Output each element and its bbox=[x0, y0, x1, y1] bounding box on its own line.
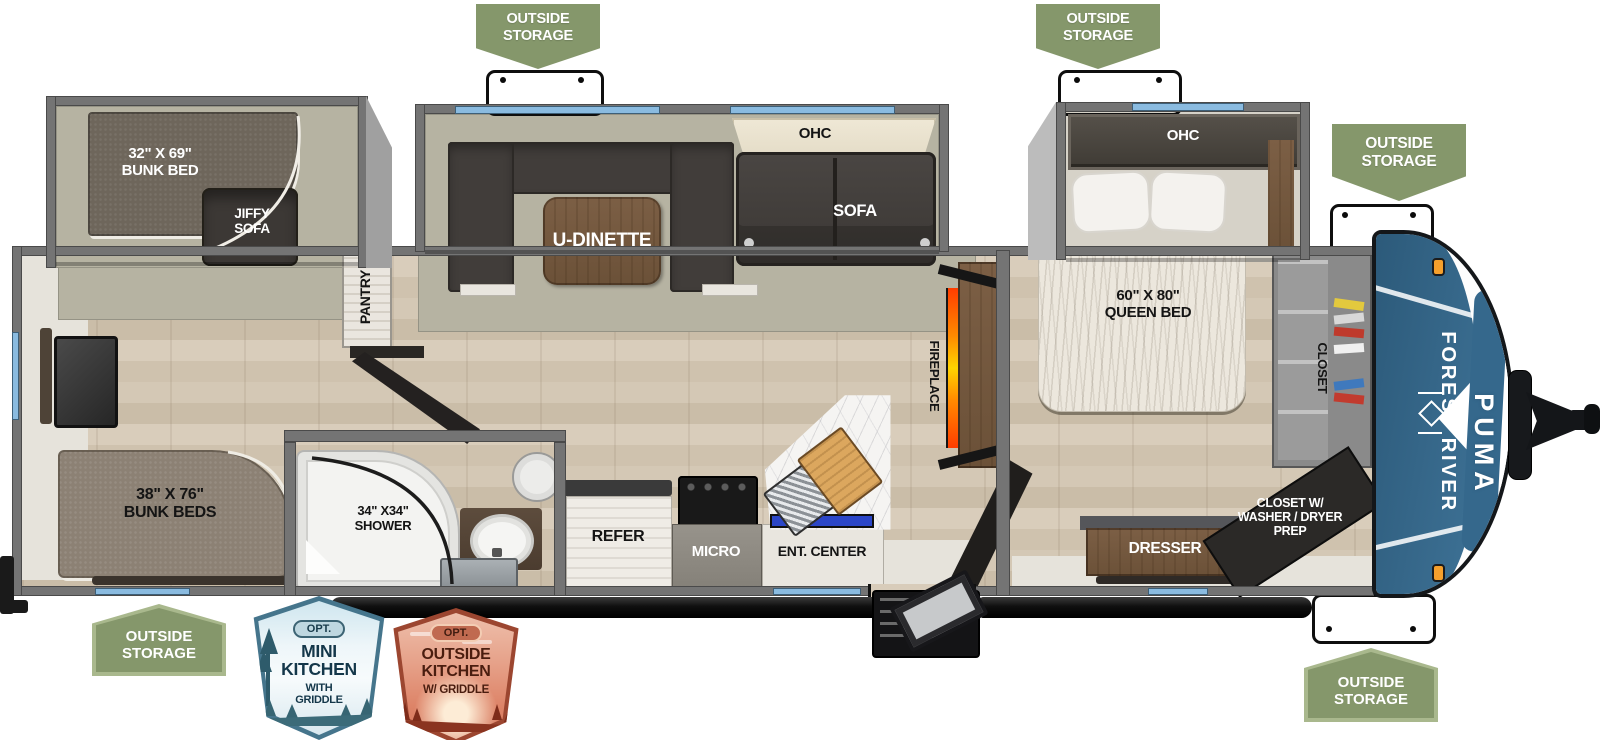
window bbox=[1132, 103, 1244, 111]
u-dinette-label: U-DINETTE bbox=[545, 230, 659, 251]
mini-kitchen-subtitle: WITH GRIDDLE bbox=[259, 682, 379, 706]
closet-label: CLOSET bbox=[1315, 326, 1329, 410]
outside-storage-label: OUTSIDE STORAGE bbox=[1334, 674, 1408, 709]
jiffy-sofa-label: JIFFY SOFA bbox=[212, 206, 292, 236]
hitch-crossbar bbox=[1508, 370, 1532, 480]
outside-storage-label: OUTSIDE STORAGE bbox=[122, 628, 196, 663]
refer-counter bbox=[560, 480, 672, 496]
closet-washer-dryer-label: CLOSET W/ WASHER / DRYER PREP bbox=[1222, 496, 1358, 538]
body-left-wall bbox=[12, 246, 22, 596]
pantry-label: PANTRY bbox=[358, 249, 376, 345]
bathroom-top-wall bbox=[284, 430, 566, 442]
slide-opening-shadow bbox=[1066, 258, 1300, 262]
window bbox=[730, 106, 895, 114]
mini-kitchen-badge: OPT. MINI KITCHEN WITH GRIDDLE bbox=[248, 596, 390, 740]
tv-mount bbox=[40, 328, 52, 424]
opt-label: OPT. bbox=[307, 623, 331, 635]
outside-kitchen-badge: OPT. OUTSIDE KITCHEN W/ GRIDDLE bbox=[388, 608, 524, 740]
dinette-slide-right-wall bbox=[939, 104, 949, 252]
dresser-label: DRESSER bbox=[1090, 540, 1240, 557]
ohc-bedroom-label: OHC bbox=[1138, 128, 1228, 145]
opt-pill: OPT. bbox=[293, 620, 345, 638]
storage-door-outline bbox=[1312, 594, 1436, 644]
rivet-dot bbox=[1410, 212, 1416, 218]
dinette-step bbox=[460, 284, 516, 296]
grass-icon bbox=[504, 710, 513, 722]
outside-storage-badge: OUTSIDE STORAGE bbox=[1036, 4, 1160, 69]
bunk-bed-32x69-label: 32" X 69" BUNK BED bbox=[100, 146, 220, 180]
outside-storage-badge: OUTSIDE STORAGE bbox=[1304, 648, 1438, 722]
marker-light bbox=[1432, 564, 1445, 582]
outside-storage-badge: OUTSIDE STORAGE bbox=[92, 604, 226, 676]
bunk-rail bbox=[92, 576, 304, 585]
rear-bumper bbox=[0, 600, 28, 613]
dinette-bench-right bbox=[670, 142, 734, 292]
bunk-slide-depth-wedge bbox=[366, 96, 392, 268]
floorplan-canvas: FOREST RIVER PUMA OUTSIDE STORAGE OUTSID… bbox=[0, 0, 1600, 740]
ohc-living-label: OHC bbox=[770, 126, 860, 143]
outside-storage-label: OUTSIDE STORAGE bbox=[1362, 131, 1437, 172]
mini-kitchen-title: MINI KITCHEN bbox=[259, 642, 379, 679]
window bbox=[1148, 588, 1208, 595]
outside-storage-label: OUTSIDE STORAGE bbox=[503, 11, 573, 45]
outside-storage-badge: OUTSIDE STORAGE bbox=[1332, 124, 1466, 201]
marker-light bbox=[1432, 258, 1445, 276]
opt-label: OPT. bbox=[444, 627, 468, 639]
dinette-bench-left bbox=[448, 142, 514, 292]
bedroom-slide-right-wall bbox=[1300, 102, 1310, 260]
bunk-slide-left-wall bbox=[46, 96, 56, 268]
door-jamb bbox=[868, 584, 871, 598]
stove-burners bbox=[684, 480, 754, 494]
outside-kitchen-subtitle: W/ GRIDDLE bbox=[396, 684, 516, 697]
pillow bbox=[1070, 170, 1151, 234]
bedroom-slide-depth-wedge bbox=[1028, 102, 1056, 260]
shower-label: 34" X34" SHOWER bbox=[328, 504, 438, 533]
micro-label: MICRO bbox=[672, 544, 760, 561]
dinette-step bbox=[702, 284, 758, 296]
bedroom-slide-left-wall bbox=[1056, 102, 1066, 260]
headboard bbox=[1268, 140, 1294, 252]
queen-bed bbox=[1038, 248, 1246, 412]
brand-manufacturer: FOREST RIVER bbox=[1437, 292, 1459, 552]
opt-pill: OPT. bbox=[430, 624, 482, 642]
queen-bed-label: 60" X 80" QUEEN BED bbox=[1078, 288, 1218, 322]
rear-tv bbox=[54, 336, 118, 428]
window bbox=[12, 332, 19, 420]
window bbox=[95, 588, 190, 595]
ent-center-label: ENT. CENTER bbox=[762, 544, 882, 560]
slide-opening-shadow bbox=[56, 262, 358, 266]
brand-model: PUMA bbox=[1469, 325, 1499, 565]
bathroom-right-wall bbox=[554, 442, 566, 596]
window bbox=[455, 106, 660, 114]
bathroom-left-wall bbox=[284, 442, 296, 596]
outside-storage-label: OUTSIDE STORAGE bbox=[1063, 11, 1133, 45]
fireplace-label: FIREPLACE bbox=[925, 326, 941, 426]
faucet bbox=[492, 548, 502, 557]
rivet-dot bbox=[1342, 212, 1348, 218]
slide-opening-shadow bbox=[425, 250, 939, 254]
front-cap: FOREST RIVER PUMA bbox=[1372, 230, 1514, 598]
refer-label: REFER bbox=[568, 528, 668, 546]
hitch-coupler bbox=[1584, 404, 1600, 434]
frame-rail bbox=[330, 597, 880, 618]
dinette-slide-left-wall bbox=[415, 104, 425, 252]
outside-kitchen-title: OUTSIDE KITCHEN bbox=[396, 646, 516, 681]
bedroom-divider-wall bbox=[996, 250, 1010, 596]
bunk-beds-38x76-label: 38" X 76" BUNK BEDS bbox=[90, 486, 250, 522]
window bbox=[773, 588, 861, 595]
frame-rail bbox=[980, 597, 1312, 618]
pillow bbox=[1148, 170, 1227, 234]
bunk-slide-top-wall bbox=[46, 96, 368, 106]
sofa-label: SOFA bbox=[805, 202, 905, 220]
outside-storage-badge: OUTSIDE STORAGE bbox=[476, 4, 600, 69]
